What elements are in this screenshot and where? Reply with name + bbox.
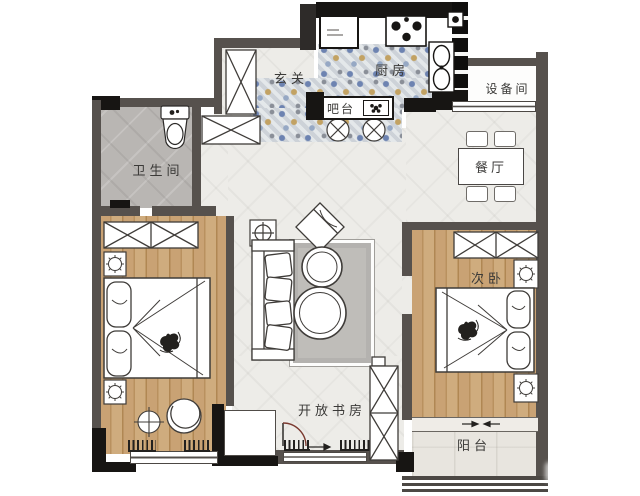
balcony-left-pier	[396, 452, 414, 472]
entry-kitchen-corner-wall	[300, 4, 316, 50]
flower-icon	[363, 100, 389, 116]
second-bedroom-label: 次卧	[452, 268, 524, 287]
bay-bottom-wall	[212, 456, 278, 466]
curtain-symbol	[184, 440, 210, 452]
dining-chair	[494, 131, 516, 147]
equipment-room-label: 设备间	[462, 80, 554, 97]
floor-plan: 餐厅 吧台	[0, 0, 640, 496]
equipment-top-wall	[466, 58, 538, 66]
master-bedroom-floor	[100, 216, 226, 454]
stove	[386, 16, 426, 46]
master-window	[130, 451, 218, 464]
bathroom-label: 卫生间	[110, 160, 206, 179]
dining-room-label: 餐厅	[475, 157, 507, 176]
bathroom-right-wall	[192, 102, 201, 216]
second-bedroom-left-wall-lower	[402, 314, 412, 420]
dining-chair	[494, 186, 516, 202]
master-right-wall	[226, 216, 234, 406]
bar-counter: 吧台	[322, 96, 394, 120]
entry-label: 玄关	[256, 68, 326, 87]
study-window	[283, 452, 367, 462]
bar-label: 吧台	[327, 100, 355, 117]
bathroom-left-wall	[92, 100, 101, 216]
dining-table: 餐厅	[458, 148, 524, 185]
watermark	[545, 462, 640, 482]
second-bedroom-window-band	[412, 417, 538, 432]
balcony-window	[402, 476, 548, 492]
bathroom-floor	[100, 106, 194, 208]
equipment-window	[452, 101, 536, 112]
balcony-label: 阳台	[438, 435, 510, 454]
kitchen-label: 厨房	[352, 60, 432, 79]
second-bedroom-left-wall-upper	[402, 222, 412, 276]
dining-chair	[466, 186, 488, 202]
master-left-wall	[92, 208, 101, 434]
curtain-symbol	[340, 440, 372, 451]
bathroom-bottom-wall-right	[152, 206, 216, 216]
second-bedroom-top-wall	[402, 222, 540, 230]
kitchen-top-counter	[316, 2, 456, 18]
curtain-symbol	[284, 440, 310, 451]
second-bedroom-floor	[412, 230, 536, 420]
open-study-label: 开放书房	[262, 400, 402, 419]
rug-inner	[298, 248, 366, 358]
curtain-symbol	[128, 440, 156, 452]
dining-chair	[466, 131, 488, 147]
bathroom-door-jamb	[110, 200, 130, 208]
living-room-rug	[290, 240, 374, 366]
